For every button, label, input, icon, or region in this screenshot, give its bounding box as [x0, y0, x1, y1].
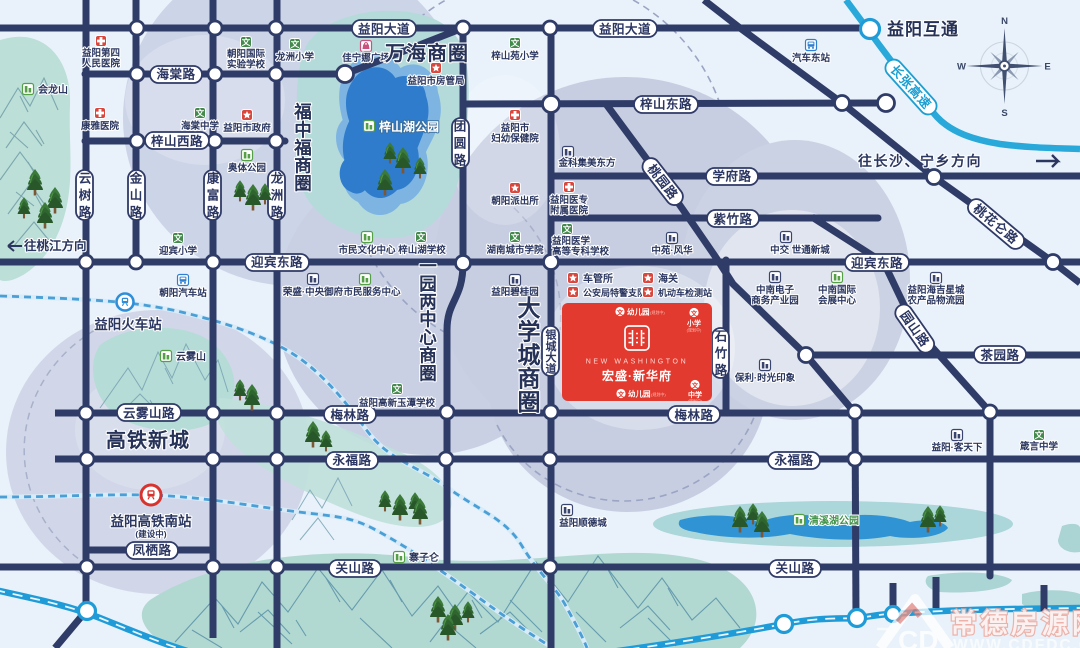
svg-text:清溪湖公园: 清溪湖公园 — [809, 514, 859, 527]
svg-text:往长沙、宁乡方向: 往长沙、宁乡方向 — [858, 153, 982, 169]
svg-text:荣盛·中央御府: 荣盛·中央御府 — [282, 286, 344, 298]
svg-text:(规划中): (规划中) — [651, 391, 666, 397]
svg-text:益阳·客天下: 益阳·客天下 — [932, 442, 983, 454]
svg-text:车管所: 车管所 — [583, 272, 613, 285]
svg-text:佳宁娜广场: 佳宁娜广场 — [342, 52, 390, 64]
svg-text:人民医院: 人民医院 — [82, 58, 121, 70]
svg-text:E: E — [1044, 62, 1050, 73]
svg-text:CD: CD — [898, 625, 938, 648]
svg-text:往桃江方向: 往桃江方向 — [24, 238, 87, 253]
svg-text:永福路: 永福路 — [331, 452, 371, 467]
svg-text:凤栖路: 凤栖路 — [132, 542, 171, 557]
svg-text:W: W — [957, 62, 966, 73]
svg-text:梓山西路: 梓山西路 — [151, 133, 203, 148]
svg-text:高等专科学校: 高等专科学校 — [552, 246, 610, 258]
svg-text:附属医院: 附属医院 — [550, 205, 589, 217]
svg-text:康雅医院: 康雅医院 — [80, 120, 120, 132]
svg-text:海棠路: 海棠路 — [156, 66, 195, 81]
svg-text:机动车检测站: 机动车检测站 — [658, 287, 712, 298]
svg-text:益阳市政府: 益阳市政府 — [223, 122, 271, 134]
svg-text:农产品物流园: 农产品物流园 — [906, 295, 964, 307]
svg-text:梓山东路: 梓山东路 — [640, 96, 692, 111]
svg-text:S: S — [1001, 108, 1007, 119]
svg-text:文: 文 — [691, 381, 699, 390]
svg-text:中南电子: 中南电子 — [756, 284, 795, 296]
svg-text:宏盛·新华府: 宏盛·新华府 — [602, 368, 672, 383]
svg-text:迎宾东路: 迎宾东路 — [851, 255, 903, 270]
svg-text:益阳大道: 益阳大道 — [599, 21, 651, 36]
svg-text:WWW.CDFDC.CN: WWW.CDFDC.CN — [953, 637, 1080, 648]
svg-text:梓山苑小学: 梓山苑小学 — [491, 50, 539, 62]
svg-text:文: 文 — [617, 390, 625, 399]
svg-text:金科集美东方: 金科集美东方 — [557, 157, 616, 169]
svg-text:朝阳汽车站: 朝阳汽车站 — [159, 287, 207, 299]
svg-text:大学城商圈: 大学城商圈 — [518, 295, 541, 415]
svg-text:康富路: 康富路 — [207, 171, 220, 220]
svg-text:中苑·风华: 中苑·风华 — [651, 245, 693, 257]
svg-text:益阳互通: 益阳互通 — [887, 19, 959, 39]
svg-text:小学: 小学 — [686, 319, 701, 328]
svg-text:NEW WASHINGTON: NEW WASHINGTON — [586, 359, 689, 366]
svg-text:(建设中): (建设中) — [135, 529, 166, 539]
svg-text:海关: 海关 — [658, 272, 678, 285]
svg-text:(规划中): (规划中) — [650, 309, 665, 315]
svg-text:商务产业园: 商务产业园 — [751, 295, 799, 307]
svg-text:奥体公园: 奥体公园 — [227, 162, 266, 174]
svg-text:妇幼保健院: 妇幼保健院 — [490, 133, 539, 145]
svg-text:梅林路: 梅林路 — [330, 407, 369, 422]
svg-text:N: N — [1001, 16, 1008, 27]
svg-text:会龙山: 会龙山 — [38, 83, 68, 96]
svg-text:(规划中): (规划中) — [687, 327, 702, 333]
svg-text:梅林路: 梅林路 — [674, 407, 713, 422]
svg-text:石竹路: 石竹路 — [714, 330, 728, 378]
svg-text:(规划中): (规划中) — [688, 398, 703, 404]
svg-text:益阳医学: 益阳医学 — [552, 235, 591, 247]
svg-text:团圆路: 团圆路 — [454, 120, 467, 168]
svg-text:湖南城市学院: 湖南城市学院 — [486, 244, 544, 256]
svg-text:益阳海吉星城: 益阳海吉星城 — [907, 284, 965, 296]
svg-text:益阳高铁南站: 益阳高铁南站 — [111, 513, 192, 529]
svg-text:梓山湖学校: 梓山湖学校 — [398, 244, 446, 256]
svg-text:幼儿园: 幼儿园 — [627, 307, 650, 317]
svg-text:文: 文 — [690, 309, 698, 318]
svg-text:会展中心: 会展中心 — [818, 295, 857, 307]
svg-text:文: 文 — [616, 308, 624, 317]
svg-text:中交 世通新城: 中交 世通新城 — [770, 244, 830, 256]
svg-text:保利·时光印象: 保利·时光印象 — [734, 372, 796, 384]
svg-text:紫竹路: 紫竹路 — [713, 211, 752, 226]
svg-text:实验学校: 实验学校 — [227, 59, 266, 71]
svg-text:益阳第四: 益阳第四 — [82, 47, 120, 59]
svg-text:市民服务中心: 市民服务中心 — [343, 286, 401, 298]
svg-text:万海商圈: 万海商圈 — [384, 41, 469, 65]
svg-text:益阳市: 益阳市 — [501, 122, 530, 134]
svg-text:益阳医专: 益阳医专 — [550, 194, 589, 206]
svg-text:龙洲小学: 龙洲小学 — [275, 51, 315, 63]
svg-text:云雾山: 云雾山 — [176, 350, 206, 363]
svg-text:益阳顺德城: 益阳顺德城 — [559, 517, 607, 529]
svg-text:汽车东站: 汽车东站 — [792, 52, 831, 64]
svg-text:茶园路: 茶园路 — [979, 347, 1019, 362]
svg-text:海棠中学: 海棠中学 — [181, 120, 220, 132]
svg-text:益阳市房管局: 益阳市房管局 — [407, 75, 464, 87]
svg-text:朝阳派出所: 朝阳派出所 — [491, 195, 539, 207]
svg-text:益阳大道: 益阳大道 — [358, 21, 410, 36]
svg-text:朝阳国际: 朝阳国际 — [227, 48, 266, 60]
svg-text:公安局特警支队: 公安局特警支队 — [583, 287, 647, 298]
svg-text:高铁新城: 高铁新城 — [106, 428, 190, 452]
svg-text:云树路: 云树路 — [79, 172, 92, 220]
svg-text:福中福商圈: 福中福商圈 — [293, 102, 312, 194]
svg-text:关山路: 关山路 — [775, 560, 814, 575]
svg-text:寨子仑: 寨子仑 — [408, 551, 440, 564]
svg-text:益阳火车站: 益阳火车站 — [94, 316, 162, 332]
svg-text:迎宾东路: 迎宾东路 — [251, 254, 303, 269]
svg-text:永福路: 永福路 — [773, 452, 813, 467]
svg-text:常德房源网: 常德房源网 — [950, 609, 1080, 639]
svg-text:中南国际: 中南国际 — [818, 284, 857, 296]
svg-text:一园两中心商圈: 一园两中心商圈 — [419, 256, 437, 383]
svg-text:金山路: 金山路 — [129, 171, 143, 220]
svg-text:关山路: 关山路 — [335, 560, 374, 575]
svg-text:幼儿园: 幼儿园 — [628, 389, 651, 399]
svg-text:龙洲路: 龙洲路 — [270, 171, 284, 220]
svg-text:云雾山路: 云雾山路 — [123, 405, 175, 420]
svg-text:市民文化中心: 市民文化中心 — [338, 244, 396, 256]
svg-text:迎宾小学: 迎宾小学 — [159, 245, 198, 257]
svg-text:梓山湖公园: 梓山湖公园 — [379, 119, 439, 134]
svg-text:益阳高新玉潭学校: 益阳高新玉潭学校 — [359, 397, 436, 409]
svg-text:银城大道: 银城大道 — [546, 328, 558, 376]
svg-text:箴言中学: 箴言中学 — [1019, 441, 1059, 453]
svg-text:学府路: 学府路 — [712, 168, 751, 183]
